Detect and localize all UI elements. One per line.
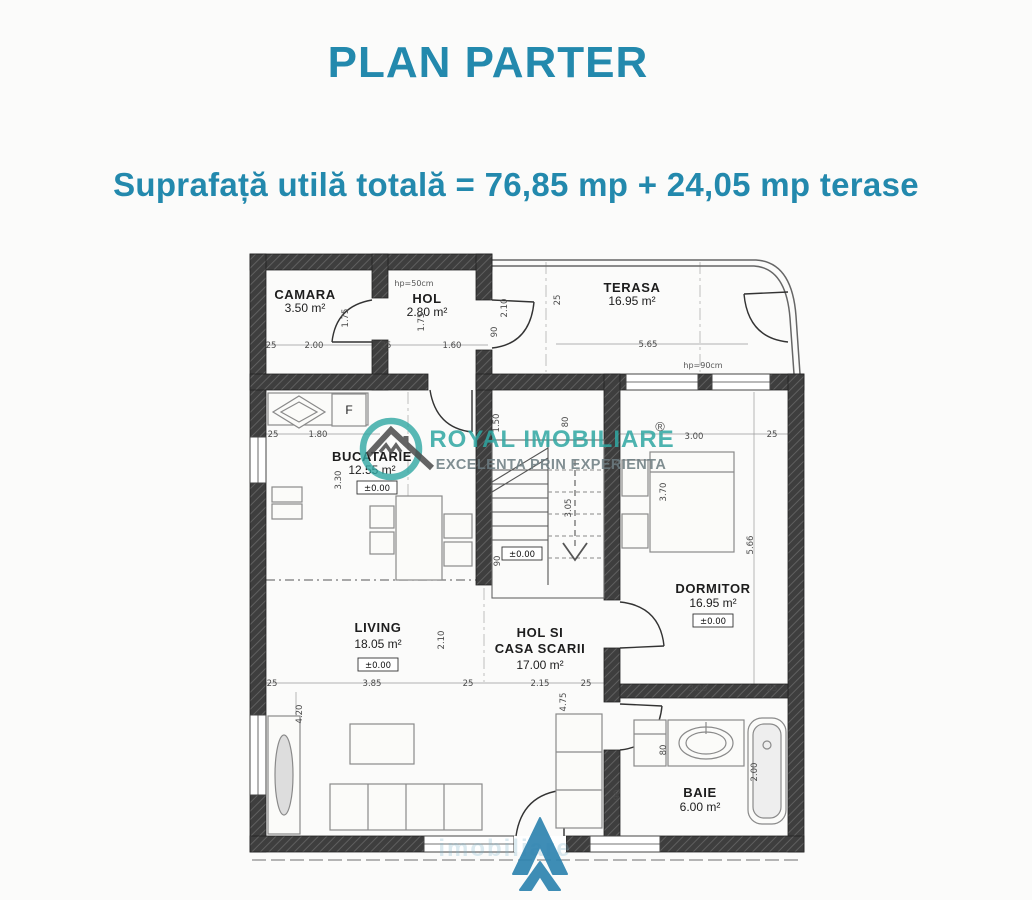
room-area-hol-casa-scarii: 17.00 m²: [516, 658, 563, 672]
console-decor: [275, 735, 293, 815]
dimension-label: 2.10: [437, 631, 447, 650]
washing-machine: [634, 720, 666, 766]
appliance: [272, 504, 302, 519]
room-area-camara: 3.50 m²: [285, 301, 326, 315]
fridge-label: F: [345, 403, 352, 417]
dimension-label: 1.75: [417, 313, 427, 332]
dimension-label: 25: [266, 341, 277, 351]
dimension-label: 90: [490, 327, 500, 338]
dimension-label: 3.05: [564, 499, 574, 518]
registered-mark: ®: [655, 419, 665, 434]
dimension-label: 3.00: [689, 684, 708, 694]
dining-table: [396, 496, 442, 580]
room-area-baie: 6.00 m²: [680, 800, 721, 814]
floor-plan-page: PLAN PARTER Suprafață utilă totală = 76,…: [0, 0, 1032, 900]
dimension-label: 25: [267, 679, 278, 689]
dimension-label: 25: [767, 430, 778, 440]
room-area-dormitor: 16.95 m²: [689, 596, 736, 610]
dimension-label: 25: [268, 430, 279, 440]
height-annotation: hp=90cm: [683, 361, 722, 370]
room-label-terasa: TERASA: [603, 280, 660, 295]
dimension-label: 1.80: [309, 430, 328, 440]
dimension-label: 25: [581, 679, 592, 689]
height-annotation: hp=50cm: [394, 279, 433, 288]
chair: [370, 506, 394, 528]
dimension-label: 2.15: [531, 679, 550, 689]
dimension-label: 25: [553, 295, 563, 306]
room-area-living: 18.05 m²: [354, 637, 401, 651]
sectional: [556, 714, 602, 828]
dimension-label: 2.00: [305, 341, 324, 351]
dimension-label: 90: [613, 790, 623, 801]
appliance: [272, 487, 302, 502]
dimension-label: 2.00: [750, 763, 760, 782]
dimension-label: 3.70: [659, 483, 669, 502]
dimension-label: 5.66: [746, 536, 756, 555]
dimension-label: 4.75: [559, 693, 569, 712]
dimension-label: 80: [659, 745, 669, 756]
level-marker: ±0.00: [364, 484, 390, 494]
floor-plan-drawing: CAMARA3.50 m²HOL2.80 m²TERASA16.95 m²BUC…: [0, 0, 1032, 900]
room-label-baie: BAIE: [683, 785, 716, 800]
dimension-label: 4.20: [295, 705, 305, 724]
dimension-label: 1.75: [341, 309, 351, 328]
watermark-tagline: EXCELENTA PRIN EXPERIENTA: [436, 457, 667, 473]
dimension-label: 3.85: [363, 679, 382, 689]
chair: [444, 542, 472, 566]
room-area-terasa: 16.95 m²: [608, 294, 655, 308]
room-label-hol-casa-scarii: HOL SI: [517, 625, 564, 640]
dimension-label: 2.10: [500, 299, 510, 318]
level-marker: ±0.00: [509, 550, 535, 560]
dimension-label: 3.00: [685, 432, 704, 442]
level-marker: ±0.00: [700, 617, 726, 627]
coffee-table: [350, 724, 414, 764]
dimension-label: 25: [463, 679, 474, 689]
nightstand: [622, 514, 648, 548]
room-label-dormitor: DORMITOR: [675, 581, 750, 596]
watermark-brand: ROYAL IMOBILIARE: [429, 426, 674, 453]
level-marker: ±0.00: [365, 661, 391, 671]
chair: [370, 532, 394, 554]
room-label-camara: CAMARA: [274, 287, 335, 302]
room-area-hol: 2.80 m²: [407, 305, 448, 319]
room-label-hol-casa-scarii-2: CASA SCARII: [495, 641, 586, 656]
dimension-label: 3.30: [334, 471, 344, 490]
room-label-hol: HOL: [412, 291, 441, 306]
dimension-label: 1.60: [443, 341, 462, 351]
chair: [444, 514, 472, 538]
dimension-label: 5.65: [639, 340, 658, 350]
dimension-label: 25: [767, 684, 778, 694]
room-label-living: LIVING: [355, 620, 402, 635]
dimension-label: 90: [493, 556, 503, 567]
dimension-label: 25: [381, 341, 392, 351]
terrace-parapet: [492, 260, 800, 374]
